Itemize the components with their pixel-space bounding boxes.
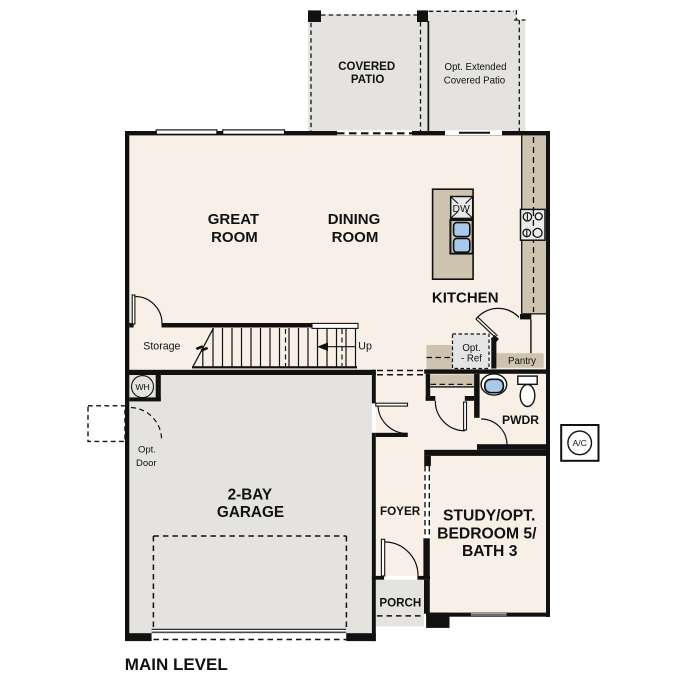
svg-text:DW: DW: [453, 204, 471, 215]
svg-text:2-BAY: 2-BAY: [228, 487, 273, 504]
svg-text:- Ref: - Ref: [461, 353, 482, 364]
svg-text:WH: WH: [135, 382, 149, 392]
svg-text:PORCH: PORCH: [379, 597, 421, 610]
svg-text:Door: Door: [136, 458, 157, 469]
svg-text:BATH 3: BATH 3: [462, 543, 518, 560]
svg-text:Opt.: Opt.: [138, 444, 156, 455]
svg-text:Covered Patio: Covered Patio: [444, 76, 505, 87]
svg-text:Pantry: Pantry: [508, 356, 536, 367]
svg-text:GREAT: GREAT: [208, 211, 259, 228]
svg-text:MAIN LEVEL: MAIN LEVEL: [125, 655, 228, 674]
svg-text:Up: Up: [358, 341, 372, 353]
svg-text:GARAGE: GARAGE: [217, 504, 284, 521]
svg-text:PATIO: PATIO: [351, 74, 384, 86]
svg-text:COVERED: COVERED: [338, 61, 395, 73]
svg-text:PWDR: PWDR: [502, 413, 539, 427]
svg-text:DINING: DINING: [328, 211, 381, 228]
svg-text:KITCHEN: KITCHEN: [432, 290, 499, 307]
svg-text:STUDY/OPT.: STUDY/OPT.: [443, 507, 535, 524]
svg-text:A/C: A/C: [572, 438, 586, 448]
svg-text:Opt.: Opt.: [462, 343, 480, 354]
svg-text:FOYER: FOYER: [380, 505, 421, 518]
svg-text:ROOM: ROOM: [211, 229, 258, 246]
svg-text:Opt. Extended: Opt. Extended: [445, 62, 507, 73]
svg-text:ROOM: ROOM: [332, 229, 379, 246]
svg-text:Storage: Storage: [143, 341, 180, 353]
svg-text:BEDROOM 5/: BEDROOM 5/: [437, 525, 537, 542]
